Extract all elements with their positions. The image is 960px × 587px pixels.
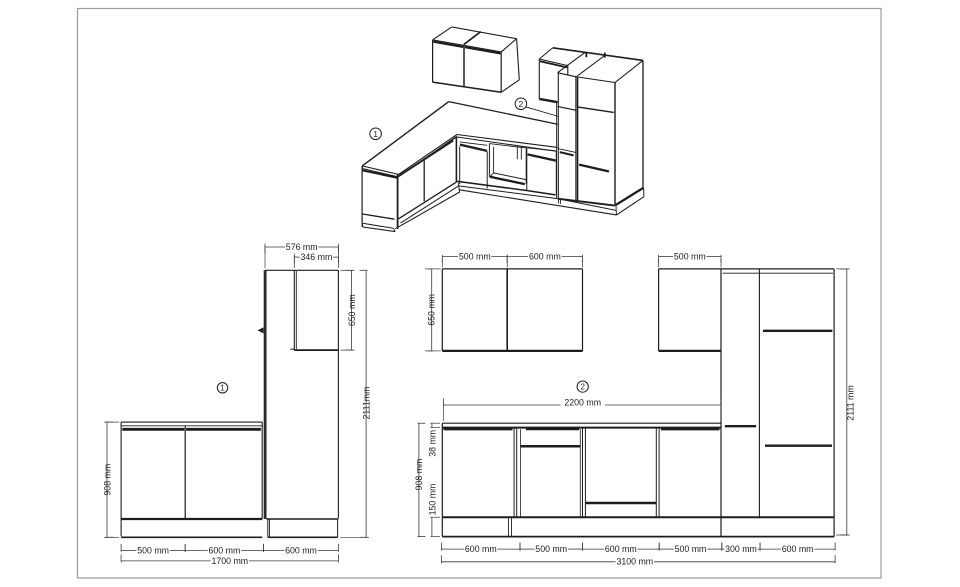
svg-text:2: 2 (519, 99, 524, 109)
svg-text:650 mm: 650 mm (427, 294, 437, 326)
svg-text:500 mm: 500 mm (674, 251, 706, 261)
svg-text:38 mm: 38 mm (427, 430, 437, 457)
svg-text:2111mm: 2111mm (361, 387, 371, 420)
svg-text:346 mm: 346 mm (301, 252, 333, 262)
svg-text:2200 mm: 2200 mm (564, 397, 601, 407)
svg-text:600 mm: 600 mm (782, 544, 814, 554)
svg-text:908 mm: 908 mm (414, 459, 424, 491)
svg-text:908 mm: 908 mm (102, 464, 112, 496)
svg-text:150 mm: 150 mm (427, 484, 437, 516)
svg-text:2: 2 (580, 383, 585, 392)
svg-text:650 mm: 650 mm (347, 294, 357, 326)
svg-text:576 mm: 576 mm (286, 242, 318, 252)
svg-text:2111 mm: 2111 mm (845, 385, 855, 420)
svg-text:600 mm: 600 mm (465, 544, 497, 554)
svg-text:300 mm: 300 mm (725, 544, 757, 554)
svg-text:500 mm: 500 mm (675, 544, 707, 554)
svg-text:1: 1 (220, 384, 225, 393)
svg-text:600 mm: 600 mm (285, 545, 317, 555)
svg-text:600 mm: 600 mm (529, 251, 561, 261)
svg-text:1: 1 (373, 129, 378, 139)
svg-text:600 mm: 600 mm (605, 544, 637, 554)
svg-text:3100 mm: 3100 mm (616, 557, 653, 567)
svg-text:500 mm: 500 mm (459, 251, 491, 261)
svg-text:500 mm: 500 mm (535, 544, 567, 554)
svg-text:600 mm: 600 mm (209, 545, 241, 555)
svg-text:1700 mm: 1700 mm (211, 556, 248, 566)
svg-text:500 mm: 500 mm (137, 545, 169, 555)
